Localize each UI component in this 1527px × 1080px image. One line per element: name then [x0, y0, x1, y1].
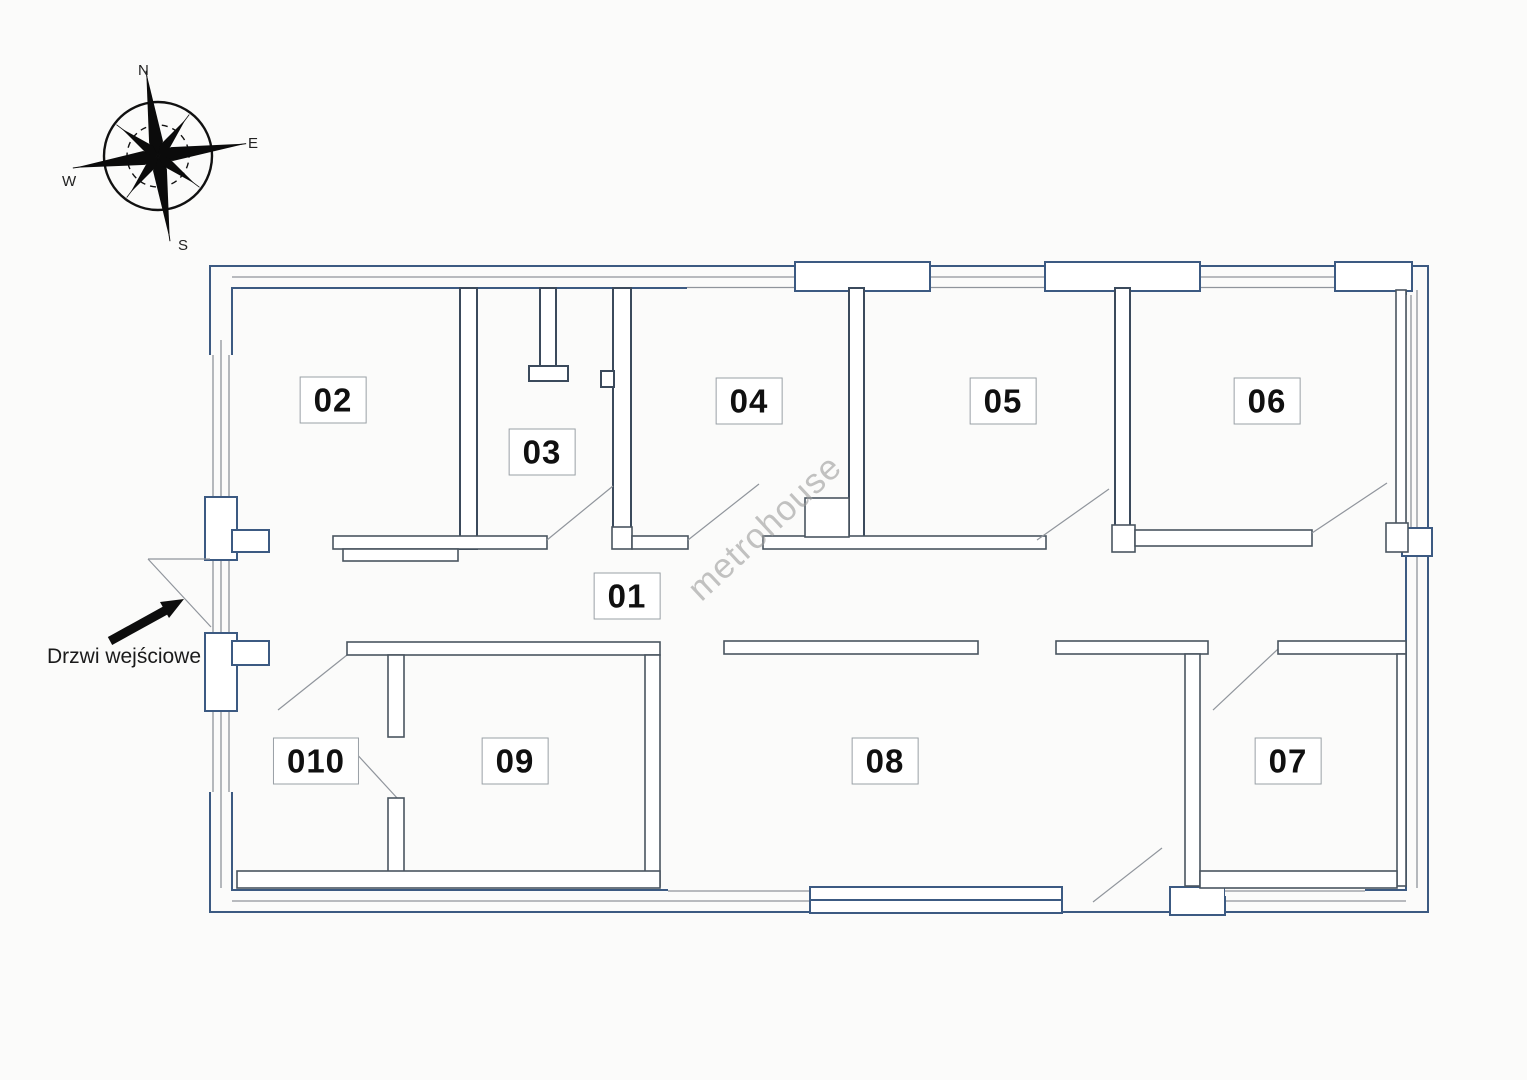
bottom-wall-pier — [1170, 887, 1225, 915]
room-label-05: 05 — [970, 378, 1037, 425]
top-wall-pier — [795, 262, 930, 291]
room-label-04: 04 — [716, 378, 783, 425]
entrance-arrow-icon — [110, 599, 184, 641]
corridor-bottom-wall — [278, 641, 1406, 710]
room-label-08: 08 — [852, 738, 919, 785]
door-swing-06 — [1312, 483, 1387, 533]
room-label-01: 01 — [594, 573, 661, 620]
interior-walls-bottom — [237, 654, 1406, 888]
compass-label-s: S — [178, 237, 188, 254]
door-swing-010 — [278, 655, 347, 710]
entrance-label: Drzwi wejściowe — [47, 645, 201, 669]
corridor-top-wall — [333, 483, 1408, 561]
compass-rose: N E W S — [61, 58, 258, 254]
wall-07-east — [1397, 654, 1406, 886]
wall-07-south — [1200, 871, 1397, 888]
room-label-02: 02 — [300, 377, 367, 424]
chimney-03 — [540, 288, 556, 368]
wall-06-east — [1396, 290, 1406, 546]
room-label-06: 06 — [1234, 378, 1301, 425]
wall-04-05 — [849, 288, 864, 540]
compass-label-w: W — [62, 173, 77, 190]
door-swing-07 — [1213, 649, 1278, 710]
compass-label-e: E — [248, 135, 258, 152]
door-swing-05 — [1037, 489, 1109, 540]
top-wall-pier — [1045, 262, 1200, 291]
room-label-09: 09 — [482, 738, 549, 785]
top-wall-pier — [1335, 262, 1412, 291]
door-swing-03 — [547, 486, 613, 540]
room-label-010: 010 — [273, 738, 359, 785]
wall-010-09-upper — [388, 655, 404, 737]
compass-label-n: N — [138, 62, 149, 79]
wall-09-08 — [645, 655, 660, 886]
wall-08-07 — [1185, 654, 1200, 886]
left-wall-openings — [148, 355, 269, 792]
wall-05-06 — [1115, 288, 1130, 540]
room-label-03: 03 — [509, 429, 576, 476]
room-label-07: 07 — [1255, 738, 1322, 785]
wall-010-09-south — [237, 871, 660, 888]
wall-02-03 — [460, 288, 477, 549]
wall-03-04 — [613, 288, 631, 540]
floor-plan-page: N E W S 01 02 03 04 05 06 07 08 09 010 D… — [0, 0, 1527, 1080]
